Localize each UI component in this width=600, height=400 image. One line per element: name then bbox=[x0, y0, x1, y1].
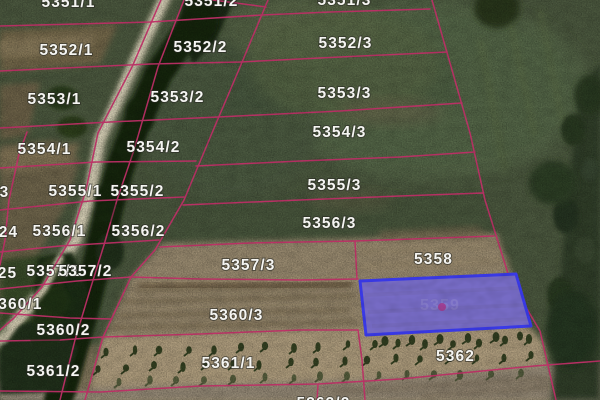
svg-text:5362: 5362 bbox=[436, 348, 475, 365]
svg-text:5356/3: 5356/3 bbox=[302, 215, 356, 232]
svg-text:5356/2: 5356/2 bbox=[111, 223, 165, 240]
svg-text:5361/2: 5361/2 bbox=[26, 363, 80, 380]
svg-text:5358: 5358 bbox=[414, 251, 453, 268]
svg-text:24: 24 bbox=[0, 224, 18, 241]
svg-text:25: 25 bbox=[0, 265, 17, 282]
svg-text:5357/2: 5357/2 bbox=[58, 263, 112, 280]
svg-text:5360/3: 5360/3 bbox=[209, 307, 263, 324]
svg-text:3: 3 bbox=[0, 184, 9, 201]
svg-text:5351/2: 5351/2 bbox=[184, 0, 238, 10]
svg-text:5354/1: 5354/1 bbox=[17, 141, 71, 158]
svg-text:5357/3: 5357/3 bbox=[221, 257, 275, 274]
svg-text:5351/3: 5351/3 bbox=[317, 0, 371, 9]
svg-text:5355/1: 5355/1 bbox=[48, 183, 102, 200]
svg-text:5355/3: 5355/3 bbox=[307, 177, 361, 194]
svg-text:5352/1: 5352/1 bbox=[39, 42, 93, 59]
svg-text:5354/2: 5354/2 bbox=[126, 139, 180, 156]
svg-text:5352/2: 5352/2 bbox=[173, 39, 227, 56]
svg-text:5353/2: 5353/2 bbox=[150, 89, 204, 106]
svg-text:5351/1: 5351/1 bbox=[41, 0, 95, 11]
svg-text:5352/3: 5352/3 bbox=[318, 35, 372, 52]
svg-text:5360/2: 5360/2 bbox=[36, 322, 90, 339]
svg-text:5353/1: 5353/1 bbox=[27, 91, 81, 108]
svg-text:5354/3: 5354/3 bbox=[312, 124, 366, 141]
svg-text:5360/1: 5360/1 bbox=[0, 296, 43, 313]
svg-text:5363/2: 5363/2 bbox=[296, 395, 350, 400]
svg-text:5361/1: 5361/1 bbox=[201, 355, 255, 372]
svg-text:5353/3: 5353/3 bbox=[317, 85, 371, 102]
svg-text:5356/1: 5356/1 bbox=[32, 223, 86, 240]
svg-text:5355/2: 5355/2 bbox=[110, 183, 164, 200]
